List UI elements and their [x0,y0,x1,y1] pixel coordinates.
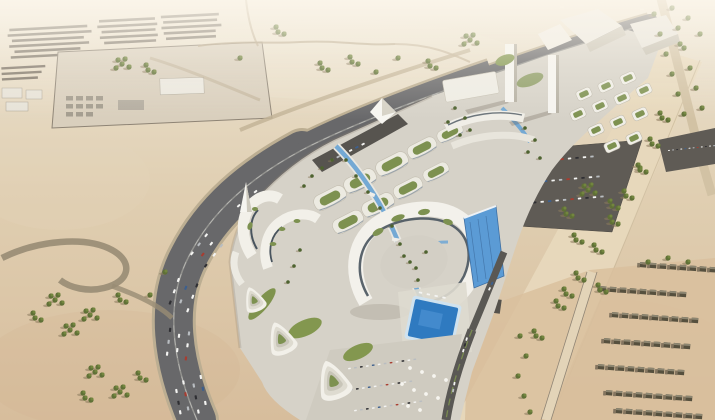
render-canvas: Bird's-eye 3D rendering of a modern dese… [0,0,715,420]
horizon-haze [0,0,715,120]
aerial-render: Bird's-eye 3D rendering of a modern dese… [0,0,715,420]
